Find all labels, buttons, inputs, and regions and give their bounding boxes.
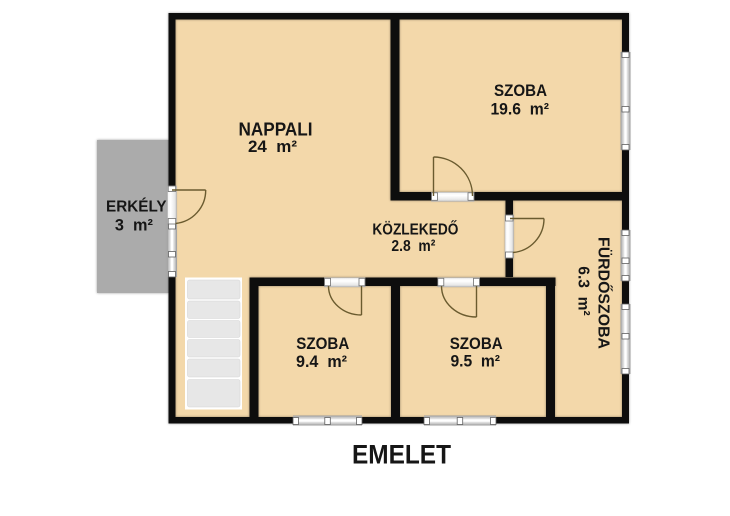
svg-text:FÜRDŐSZOBA: FÜRDŐSZOBA: [595, 237, 614, 349]
svg-text:EMELET: EMELET: [352, 440, 451, 470]
svg-text:19.6 m²: 19.6 m²: [490, 101, 549, 119]
svg-text:3 m²: 3 m²: [115, 217, 154, 235]
svg-text:9.4 m²: 9.4 m²: [296, 353, 348, 371]
svg-text:9.5 m²: 9.5 m²: [450, 353, 500, 371]
svg-text:SZOBA: SZOBA: [296, 334, 349, 353]
svg-text:KÖZLEKEDŐ: KÖZLEKEDŐ: [372, 220, 458, 239]
svg-text:24 m²: 24 m²: [248, 138, 298, 156]
svg-text:SZOBA: SZOBA: [494, 81, 547, 100]
svg-text:6.3 m²: 6.3 m²: [575, 266, 592, 316]
svg-text:ERKÉLY: ERKÉLY: [106, 199, 167, 216]
svg-text:2.8 m²: 2.8 m²: [391, 238, 435, 255]
svg-text:SZOBA: SZOBA: [450, 334, 503, 353]
svg-text:NAPPALI: NAPPALI: [239, 119, 313, 140]
